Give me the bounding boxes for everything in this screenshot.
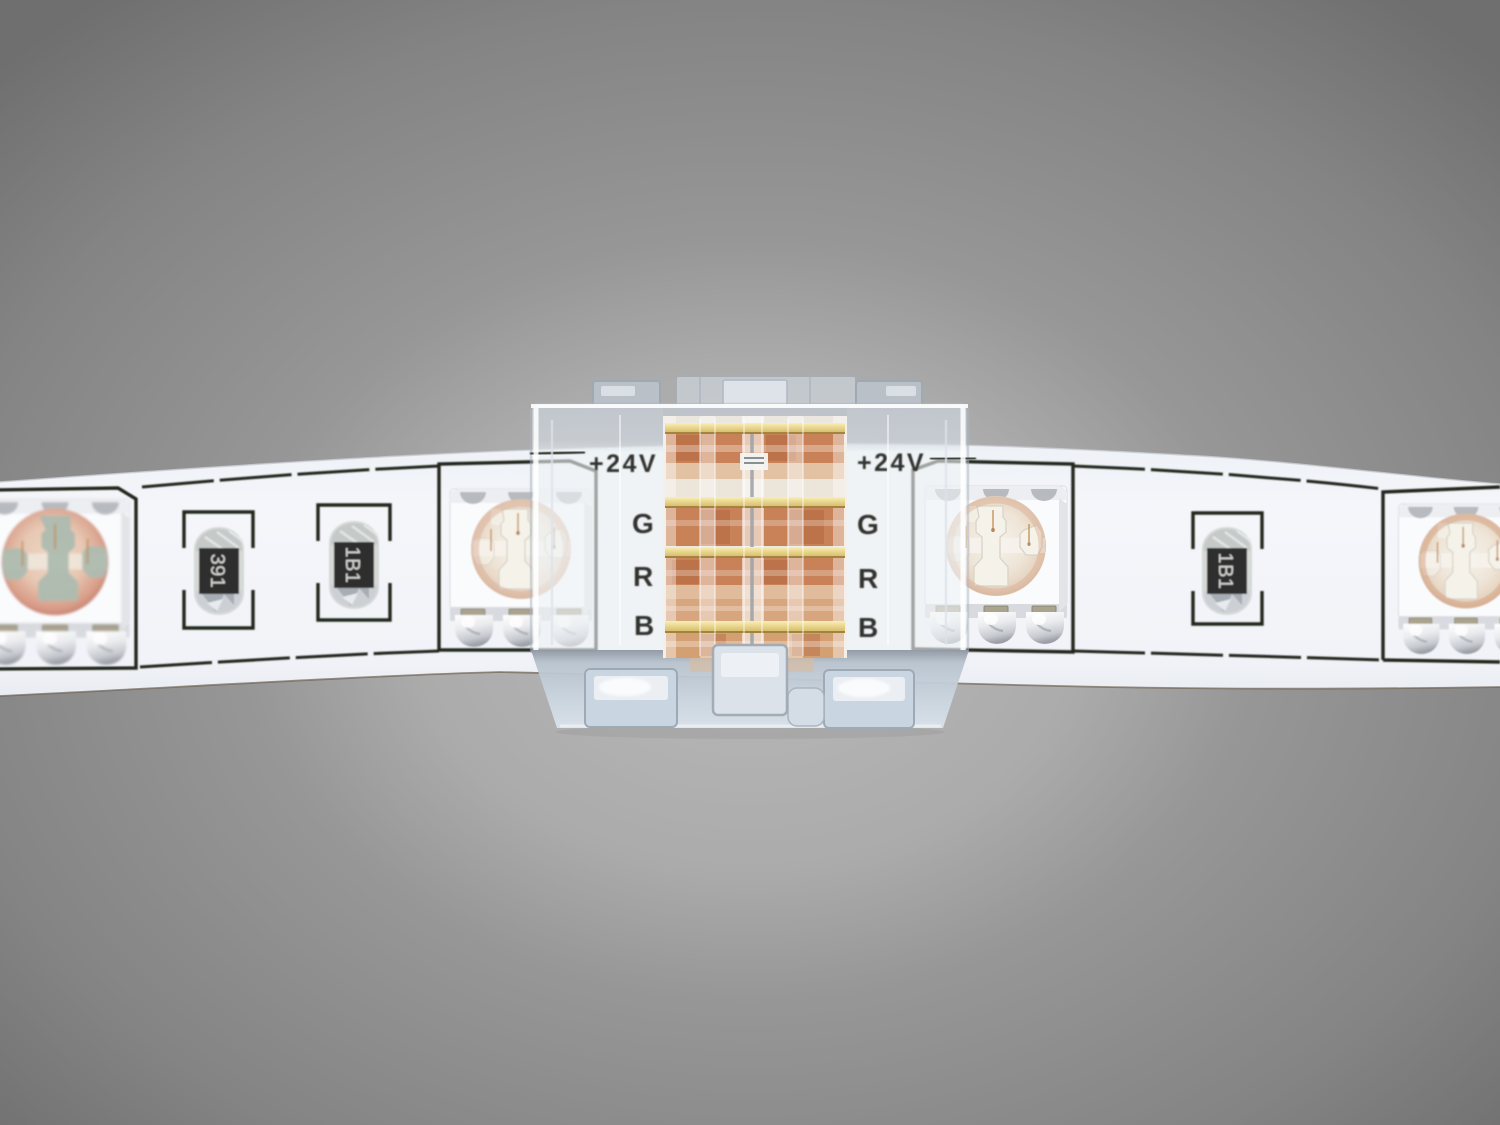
svg-text:+24V: +24V bbox=[589, 450, 658, 478]
svg-text:B: B bbox=[634, 610, 654, 641]
svg-text:G: G bbox=[632, 508, 654, 539]
svg-text:R: R bbox=[858, 563, 878, 594]
svg-text:G: G bbox=[857, 509, 879, 540]
svg-text:391: 391 bbox=[206, 554, 228, 589]
svg-text:+24V: +24V bbox=[857, 449, 926, 477]
svg-text:1B1: 1B1 bbox=[341, 546, 363, 583]
svg-text:1B1: 1B1 bbox=[1214, 552, 1236, 589]
svg-text:B: B bbox=[858, 612, 878, 643]
svg-text:R: R bbox=[633, 561, 653, 592]
